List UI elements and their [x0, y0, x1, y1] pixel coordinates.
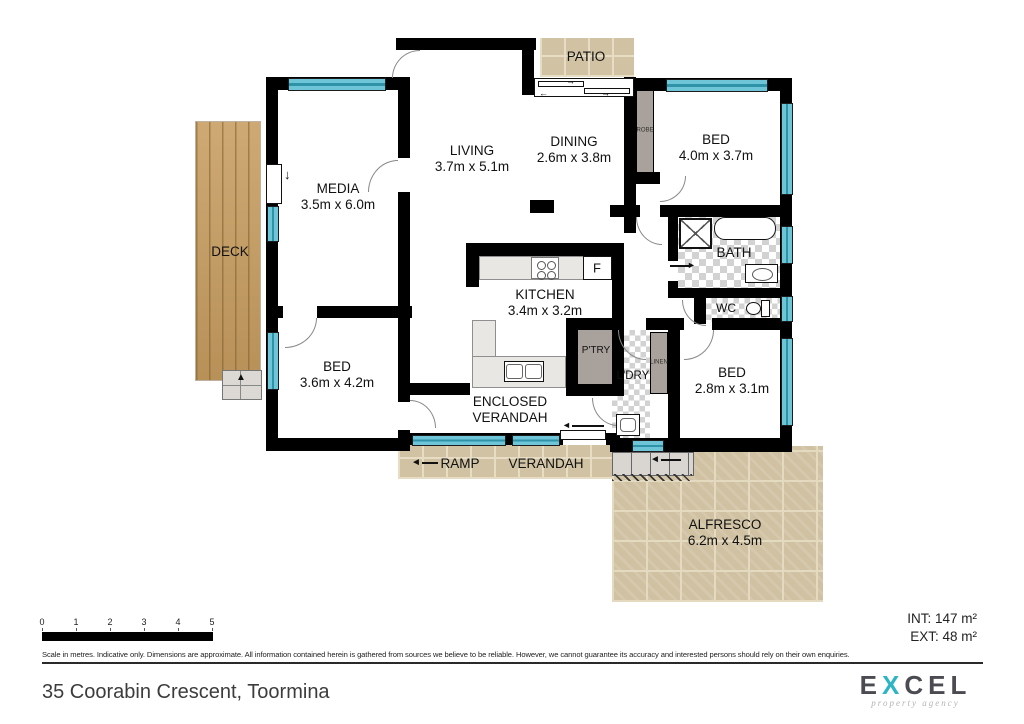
wall — [266, 77, 278, 451]
window — [288, 78, 386, 91]
disclaimer-text: Scale in metres. Indicative only. Dimens… — [42, 650, 983, 659]
door-swing — [285, 318, 317, 348]
wall — [398, 192, 410, 306]
floorplan-canvas: ▲ → — [0, 0, 1024, 724]
patio-sliding-door-panel — [538, 81, 584, 87]
room-label-patio: PATIO — [567, 49, 606, 65]
wall — [530, 200, 554, 213]
room-label-robe: ROBE — [636, 127, 653, 134]
bathtub — [714, 217, 776, 240]
room-label-alfresco: ALFRESCO6.2m x 4.5m — [688, 517, 762, 549]
steps-hatch — [612, 474, 692, 481]
door-swing — [592, 398, 618, 426]
scale-tick-label: 2 — [107, 617, 112, 627]
door-swing — [682, 300, 706, 326]
window — [412, 435, 506, 446]
wall — [266, 438, 410, 451]
wall — [266, 306, 283, 318]
window — [781, 226, 793, 264]
wall — [466, 243, 479, 287]
window — [781, 338, 793, 426]
patio-door-arrow-icon: ← — [539, 89, 548, 98]
room-label-wc: WC — [716, 301, 736, 315]
logo-tagline: property agency — [853, 698, 978, 708]
room-label-pantry: P'TRY — [582, 345, 610, 357]
toilet-bowl — [746, 302, 761, 315]
verandah-door-line — [572, 425, 604, 427]
steps-arrow-line — [661, 459, 681, 461]
pantry-closet — [578, 330, 612, 384]
agency-logo: EXCEL property agency — [853, 670, 978, 708]
wall — [668, 330, 680, 440]
bath-door-arrow-icon: ► — [687, 261, 696, 270]
scale-tick-label: 0 — [39, 617, 44, 627]
door-swing — [392, 50, 420, 78]
room-label-ramp: RAMP — [440, 456, 479, 472]
scale-bar-rule — [42, 632, 213, 641]
room-label-laundry: L'DRY — [617, 370, 650, 384]
scale-bar: 0 1 2 3 4 5 — [42, 617, 222, 643]
logo-wordmark: EXCEL — [853, 670, 978, 701]
scale-tick — [42, 628, 43, 631]
room-label-deck: DECK — [211, 244, 249, 260]
bath-vanity — [745, 264, 778, 283]
verandah-sliding-door — [560, 430, 606, 440]
room-label-enclosed-verandah: ENCLOSEDVERANDAH — [472, 394, 547, 426]
room-label-bath: BATH — [716, 245, 751, 261]
area-int: INT: 147 m² — [800, 611, 977, 626]
fridge-label: F — [593, 260, 601, 275]
wall — [466, 243, 624, 256]
room-label-living: LIVING3.7m x 5.1m — [435, 143, 509, 175]
scale-tick — [76, 628, 77, 631]
wall — [668, 288, 792, 298]
wall — [398, 383, 470, 395]
room-label-linen: LINEN — [650, 359, 668, 366]
scale-tick-label: 4 — [175, 617, 180, 627]
laundry-tub — [616, 414, 640, 436]
room-label-dining: DINING2.6m x 3.8m — [537, 134, 611, 166]
door-swing — [684, 330, 714, 360]
deck-sliding-door — [266, 164, 282, 204]
patio-door-arrow-icon: → — [601, 89, 610, 98]
room-label-media: MEDIA3.5m x 6.0m — [301, 181, 375, 213]
door-swing — [660, 176, 686, 202]
ramp-arrow-line — [422, 462, 438, 464]
deck-steps-up-arrow-icon: ▲ — [236, 373, 246, 383]
ramp-arrow-icon: ◄ — [411, 458, 421, 468]
stove-icon — [531, 257, 559, 279]
wall — [660, 205, 792, 217]
room-label-verandah: VERANDAH — [508, 456, 583, 472]
wall — [566, 384, 624, 396]
kitchen-sink — [504, 361, 544, 382]
scale-tick-label: 1 — [73, 617, 78, 627]
scale-tick-label: 3 — [141, 617, 146, 627]
deck-door-arrow-icon: ↓ — [284, 168, 291, 181]
scale-tick — [212, 628, 213, 631]
wall — [396, 38, 536, 50]
wall — [668, 217, 678, 261]
wall — [612, 243, 624, 384]
verandah-door-arrow-icon: ◄ — [562, 421, 571, 430]
scale-tick — [178, 628, 179, 631]
area-ext: EXT: 48 m² — [800, 629, 977, 644]
shower — [679, 218, 712, 249]
address-title: 35 Coorabin Crescent, Toormina — [42, 681, 330, 704]
patio-door-arrow-icon: → — [566, 77, 575, 86]
room-label-bed2: BED3.6m x 4.2m — [300, 359, 374, 391]
scale-tick-label: 5 — [209, 617, 214, 627]
window — [666, 79, 768, 92]
room-label-bed1: BED4.0m x 3.7m — [679, 132, 753, 164]
window — [781, 103, 793, 195]
room-label-bed3: BED2.8m x 3.1m — [695, 365, 769, 397]
wall — [522, 38, 534, 95]
window — [632, 440, 664, 452]
wall — [610, 205, 640, 217]
window — [267, 332, 279, 390]
door-swing — [410, 400, 436, 428]
window — [267, 206, 279, 242]
room-label-kitchen: KITCHEN3.4m x 3.2m — [508, 287, 582, 319]
window — [781, 296, 793, 322]
door-swing — [636, 217, 662, 245]
scale-tick — [144, 628, 145, 631]
toilet-tank — [761, 300, 770, 317]
steps-arrow-icon: ◄ — [650, 455, 660, 465]
logo-x-icon: X — [882, 670, 904, 700]
wall — [398, 90, 410, 158]
wall — [634, 172, 660, 184]
scale-tick — [110, 628, 111, 631]
divider-line — [42, 662, 983, 664]
wall — [712, 318, 792, 330]
window — [512, 435, 560, 446]
wall — [646, 318, 684, 330]
